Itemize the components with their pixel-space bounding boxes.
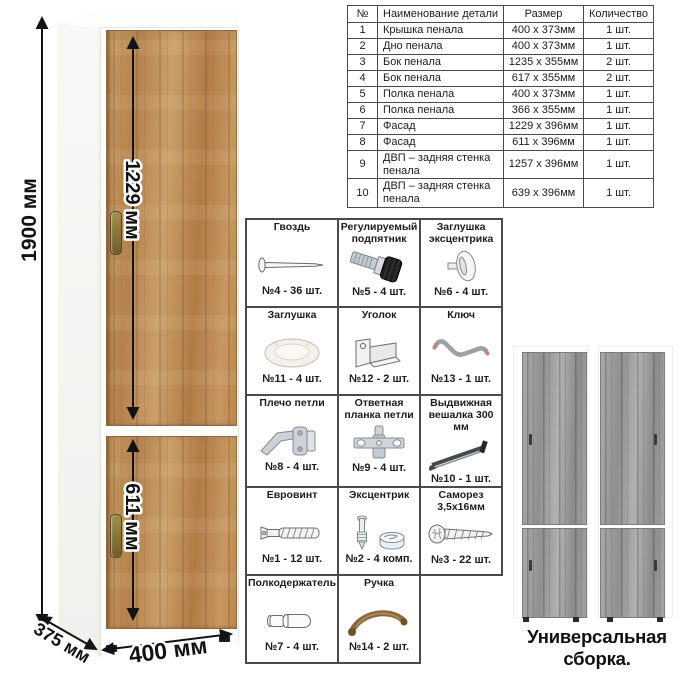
hardware-item-title: Евровинт — [248, 490, 336, 513]
table-row: 4Бок пенала617 х 355мм2 шт. — [348, 71, 654, 87]
pullout-hanger-icon — [422, 433, 500, 473]
cell-size: 400 х 373мм — [504, 23, 584, 39]
mini-door-handle — [529, 560, 532, 571]
header-quantity: Количество — [584, 6, 654, 23]
empty-cell — [420, 575, 502, 663]
shelf-pin-icon — [248, 601, 336, 641]
hardware-item-title: Саморез 3,5х16мм — [422, 490, 500, 514]
hardware-item-title: Ручка — [340, 578, 418, 601]
corner-bracket-icon — [340, 333, 418, 373]
cell-qty: 1 шт. — [584, 103, 654, 119]
cell-name: ДВП – задняя стенка пенала — [378, 151, 504, 179]
hardware-item-qty: №4 - 36 шт. — [248, 285, 336, 297]
cell-qty: 1 шт. — [584, 135, 654, 151]
dim-height-label: 1900 мм — [18, 178, 41, 262]
cell-size: 1235 х 355мм — [504, 55, 584, 71]
cell-num: 5 — [348, 87, 378, 103]
mini-cabinet-foot — [523, 617, 529, 622]
self-tapping-screw-icon — [422, 514, 500, 554]
hardware-item: Ответная планка петли№9 - 4 шт. — [338, 395, 420, 487]
hardware-item-qty: №2 - 4 комп. — [340, 553, 418, 565]
cell-size: 400 х 373мм — [504, 39, 584, 55]
hardware-item-qty: №5 - 4 шт. — [340, 286, 418, 298]
cell-qty: 1 шт. — [584, 179, 654, 207]
hardware-row: Гвоздь№4 - 36 шт.Регулируемый подпятник№… — [246, 219, 502, 307]
cell-qty: 1 шт. — [584, 87, 654, 103]
cell-size: 611 х 396мм — [504, 135, 584, 151]
cap-icon — [248, 333, 336, 373]
parts-table-body: 1Крышка пенала400 х 373мм1 шт.2Дно пенал… — [348, 23, 654, 208]
hardware-item-qty: №13 - 1 шт. — [422, 373, 500, 385]
header-name: Наименование детали — [378, 6, 504, 23]
table-row: 3Бок пенала1235 х 355мм2 шт. — [348, 55, 654, 71]
dimension-overlay: 1900 мм 1229 мм 611 мм 375 мм 400 мм — [0, 0, 250, 683]
hardware-item-title: Регулируемый подпятник — [340, 222, 418, 246]
cell-qty: 1 шт. — [584, 23, 654, 39]
hardware-item-title: Уголок — [340, 310, 418, 333]
hardware-item-qty: №14 - 2 шт. — [340, 641, 418, 653]
table-row: 1Крышка пенала400 х 373мм1 шт. — [348, 23, 654, 39]
table-row: 10ДВП – задняя стенка пенала639 х 396мм1… — [348, 179, 654, 207]
hex-key-icon — [422, 333, 500, 373]
table-row: 6Полка пенала366 х 355мм1 шт. — [348, 103, 654, 119]
cell-num: 8 — [348, 135, 378, 151]
cell-num: 6 — [348, 103, 378, 119]
cell-name: ДВП – задняя стенка пенала — [378, 179, 504, 207]
cell-qty: 2 шт. — [584, 71, 654, 87]
cell-qty: 2 шт. — [584, 55, 654, 71]
mini-door-handle — [654, 434, 657, 445]
cell-name: Фасад — [378, 119, 504, 135]
euro-screw-icon — [248, 513, 336, 553]
hardware-item-qty: №7 - 4 шт. — [248, 641, 336, 653]
hardware-item: Эксцентрик№2 - 4 комп. — [338, 487, 420, 575]
dim-upper-door-label: 1229 мм — [121, 160, 143, 240]
hardware-item: Саморез 3,5х16мм№3 - 22 шт. — [420, 487, 502, 575]
hardware-grid-body: Гвоздь№4 - 36 шт.Регулируемый подпятник№… — [246, 219, 502, 663]
hardware-item-title: Выдвижная вешалка 300 мм — [422, 398, 500, 433]
cell-name: Дно пенала — [378, 39, 504, 55]
mini-door-handle — [529, 434, 532, 445]
cell-size: 366 х 355мм — [504, 103, 584, 119]
mini-right-lower-door — [600, 528, 665, 618]
dim-lower-door-label: 611 мм — [121, 483, 143, 550]
cam-lock-icon — [340, 513, 418, 553]
hardware-item: Евровинт№1 - 12 шт. — [246, 487, 338, 575]
hardware-item: Гвоздь№4 - 36 шт. — [246, 219, 338, 307]
hardware-item-title: Ответная планка петли — [340, 398, 418, 422]
cell-num: 2 — [348, 39, 378, 55]
cell-num: 9 — [348, 151, 378, 179]
header-size: Размер — [504, 6, 584, 23]
cell-num: 4 — [348, 71, 378, 87]
hardware-item-title: Полкодержатель — [248, 578, 336, 601]
hardware-item: Плечо петли№8 - 4 шт. — [246, 395, 338, 487]
hardware-item: Полкодержатель№7 - 4 шт. — [246, 575, 338, 663]
cell-num: 3 — [348, 55, 378, 71]
nail-icon — [248, 245, 336, 285]
hardware-item-title: Ключ — [422, 310, 500, 333]
table-row: 7Фасад1229 х 396мм1 шт. — [348, 119, 654, 135]
cell-qty: 1 шт. — [584, 39, 654, 55]
mini-left-lower-door — [522, 528, 587, 618]
cell-num: 7 — [348, 119, 378, 135]
hinge-plate-icon — [340, 422, 418, 462]
hardware-item-qty: №12 - 2 шт. — [340, 373, 418, 385]
hardware-item: Выдвижная вешалка 300 мм№10 - 1 шт. — [420, 395, 502, 487]
cell-qty: 1 шт. — [584, 119, 654, 135]
hardware-row: Заглушка№11 - 4 шт.Уголок№12 - 2 шт.Ключ… — [246, 307, 502, 395]
universal-assembly-caption: Универсальная сборка. — [492, 626, 700, 670]
hardware-row: Полкодержатель№7 - 4 шт.Ручка№14 - 2 шт. — [246, 575, 502, 663]
cell-qty: 1 шт. — [584, 151, 654, 179]
hinge-arm-icon — [248, 421, 336, 461]
table-row: 9ДВП – задняя стенка пенала1257 х 396мм1… — [348, 151, 654, 179]
cell-num: 10 — [348, 179, 378, 207]
hardware-item: Ключ№13 - 1 шт. — [420, 307, 502, 395]
hardware-item: Ручка№14 - 2 шт. — [338, 575, 420, 663]
hardware-item-qty: №6 - 4 шт. — [422, 286, 500, 298]
hardware-item-title: Эксцентрик — [340, 490, 418, 513]
cell-name: Полка пенала — [378, 103, 504, 119]
hardware-item-title: Заглушка эксцентрика — [422, 222, 500, 246]
cell-size: 617 х 355мм — [504, 71, 584, 87]
hardware-item-qty: №3 - 22 шт. — [422, 554, 500, 566]
hardware-item-qty: №8 - 4 шт. — [248, 461, 336, 473]
table-row: 5Полка пенала400 х 373мм1 шт. — [348, 87, 654, 103]
table-row: 2Дно пенала400 х 373мм1 шт. — [348, 39, 654, 55]
parts-table-header-row: № Наименование детали Размер Количество — [348, 6, 654, 23]
cell-name: Крышка пенала — [378, 23, 504, 39]
cell-name: Полка пенала — [378, 87, 504, 103]
dim-width-label: 400 мм — [127, 632, 209, 668]
hardware-item-qty: №10 - 1 шт. — [422, 473, 500, 485]
table-row: 8Фасад611 х 396мм1 шт. — [348, 135, 654, 151]
cell-num: 1 — [348, 23, 378, 39]
mini-cabinet-foot — [607, 617, 613, 622]
cell-size: 1229 х 396мм — [504, 119, 584, 135]
hardware-item-title: Заглушка — [248, 310, 336, 333]
parts-table: № Наименование детали Размер Количество … — [347, 5, 654, 208]
hardware-row: Плечо петли№8 - 4 шт.Ответная планка пет… — [246, 395, 502, 487]
cell-name: Фасад — [378, 135, 504, 151]
cell-size: 639 х 396мм — [504, 179, 584, 207]
cam-cover-icon — [422, 246, 500, 286]
cell-size: 1257 х 396мм — [504, 151, 584, 179]
mini-door-handle — [654, 560, 657, 571]
cell-size: 400 х 373мм — [504, 87, 584, 103]
hardware-item: Регулируемый подпятник№5 - 4 шт. — [338, 219, 420, 307]
hardware-item-qty: №9 - 4 шт. — [340, 462, 418, 474]
cell-name: Бок пенала — [378, 55, 504, 71]
adjustable-foot-icon — [340, 246, 418, 286]
hardware-row: Евровинт№1 - 12 шт.Эксцентрик№2 - 4 комп… — [246, 487, 502, 575]
hardware-item-title: Гвоздь — [248, 222, 336, 245]
hardware-item-qty: №11 - 4 шт. — [248, 373, 336, 385]
hardware-item: Заглушка эксцентрика№6 - 4 шт. — [420, 219, 502, 307]
hardware-item-title: Плечо петли — [248, 398, 336, 421]
hardware-item: Заглушка№11 - 4 шт. — [246, 307, 338, 395]
hardware-item-qty: №1 - 12 шт. — [248, 553, 336, 565]
mini-cabinet-right — [598, 346, 673, 618]
mini-cabinet-left — [513, 346, 588, 618]
hardware-item: Уголок№12 - 2 шт. — [338, 307, 420, 395]
handle-icon — [340, 601, 418, 641]
hardware-grid: Гвоздь№4 - 36 шт.Регулируемый подпятник№… — [245, 218, 503, 664]
mini-cabinet-foot — [657, 617, 663, 622]
header-number: № — [348, 6, 378, 23]
cell-name: Бок пенала — [378, 71, 504, 87]
mini-cabinet-foot — [573, 617, 579, 622]
